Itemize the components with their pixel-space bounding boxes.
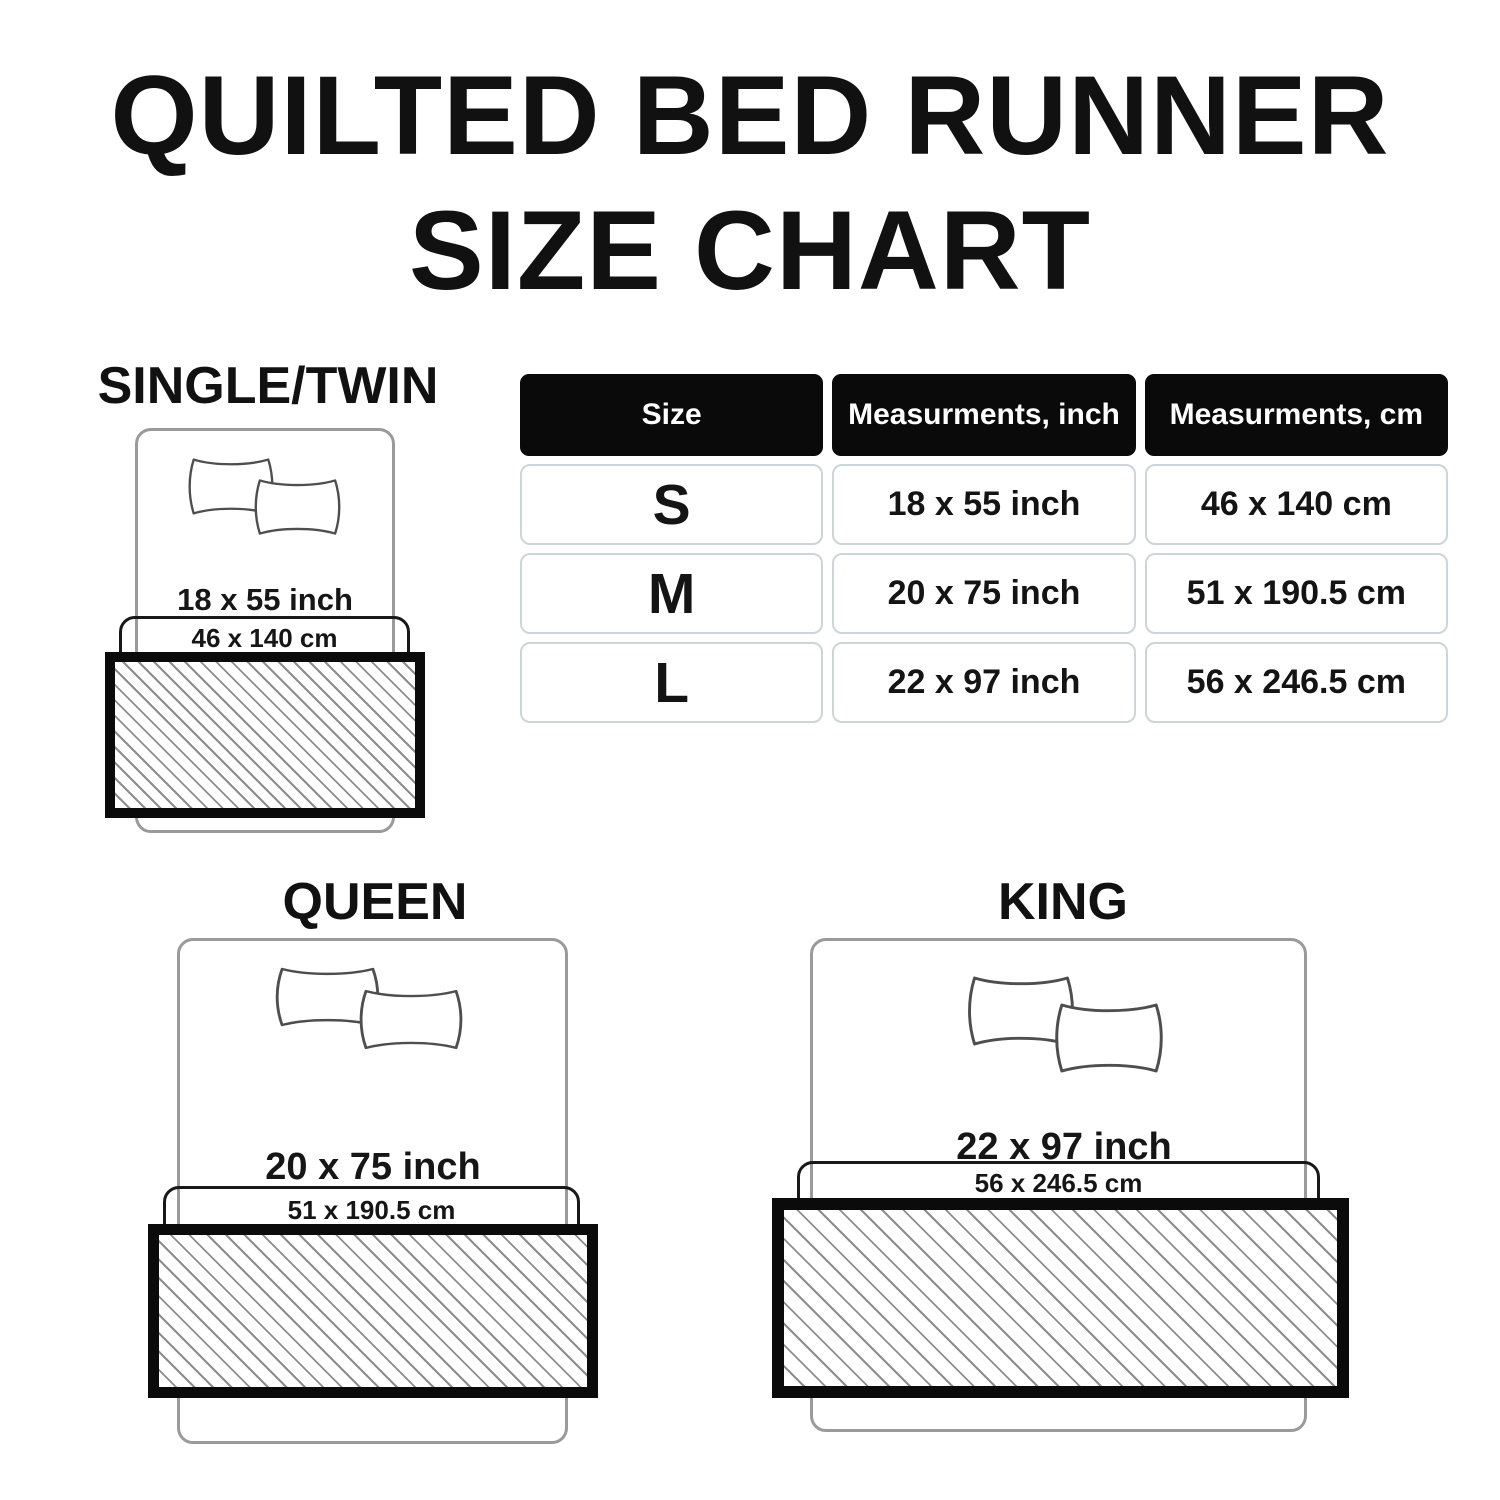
pillow-icon [347,980,475,1059]
cm-dimension-label-queen: 51 x 190.5 cm [288,1195,456,1225]
table-cell-inch-l: 22 x 97 inch [832,642,1135,723]
diagram-title-king: KING [863,872,1263,932]
inch-dimension-label-single-twin: 18 x 55 inch [115,582,415,618]
runner-swatch-king [772,1198,1349,1398]
table-cell-size-m: M [520,553,823,634]
table-header-size: Size [520,374,823,456]
table-cell-size-l: L [520,642,823,723]
table-cell-cm-l: 56 x 246.5 cm [1145,642,1448,723]
table-cell-inch-s: 18 x 55 inch [832,464,1135,545]
diagram-title-queen: QUEEN [175,872,575,932]
page-title-line-2: SIZE CHART [0,187,1500,316]
runner-swatch-single-twin [105,652,425,818]
size-chart-infographic: QUILTED BED RUNNER SIZE CHART Size Measu… [0,0,1500,1500]
table-cell-cm-m: 51 x 190.5 cm [1145,553,1448,634]
size-table: Size Measurments, inch Measurments, cm S… [520,374,1448,723]
inch-dimension-label-queen: 20 x 75 inch [223,1146,523,1189]
pillow-icon [1042,992,1176,1084]
table-cell-inch-m: 20 x 75 inch [832,553,1135,634]
page-title-line-1: QUILTED BED RUNNER [0,52,1500,181]
cm-dimension-label-king: 56 x 246.5 cm [975,1168,1143,1198]
table-header-inch: Measurments, inch [832,374,1135,456]
runner-swatch-queen [148,1224,598,1398]
diagram-title-single-twin: SINGLE/TWIN [68,356,468,416]
table-cell-size-s: S [520,464,823,545]
table-cell-cm-s: 46 x 140 cm [1145,464,1448,545]
table-header-cm: Measurments, cm [1145,374,1448,456]
cm-dimension-label-single-twin: 46 x 140 cm [191,623,337,653]
pillow-icon [244,470,351,544]
